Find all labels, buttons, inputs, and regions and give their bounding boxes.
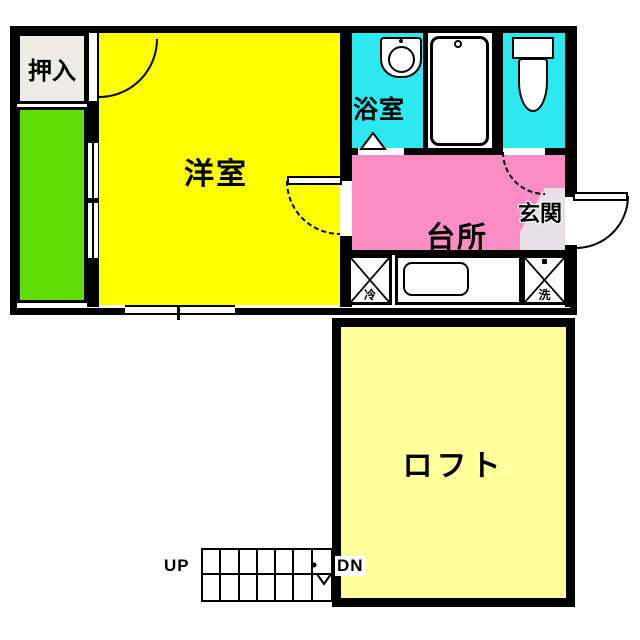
south-window-tick [177,305,180,320]
south-window [125,305,235,315]
closet-room: 押入 [17,33,87,104]
right-wall-upper [565,33,577,197]
refrigerator-label: 冷 [363,289,377,301]
veranda-window-1 [88,143,98,198]
bathtub-drain-icon [454,40,462,48]
bath-tub-wall [423,33,428,152]
closet-door-opening [87,33,99,101]
room-door-opening [340,181,352,236]
tub-toilet-wall [492,33,503,152]
toilet-door-opening [503,148,545,155]
entry-door-opening [566,197,578,245]
floor-plan-canvas: 押入 冷 洗 [0,0,640,640]
washbasin-bowl-icon [388,46,415,73]
loft-room: ロフト [332,318,575,607]
veranda-window-2 [88,203,98,258]
entry-door-leaf [573,192,628,201]
western-room-label: 洋室 [184,149,248,193]
washer-faucet-icon [542,259,547,264]
refrigerator-space-icon: 冷 [348,255,392,305]
entry-door-arc [576,196,628,248]
bathtub-icon [430,36,489,146]
bathroom-label: 浴室 [353,90,405,126]
kitchen-label: 台所 [426,214,488,256]
loft-label: ロフト [403,441,505,485]
entry-label: 玄関 [518,196,562,228]
kitchen-sink-icon [403,262,469,296]
stairs-down-label: DN [335,556,366,576]
room-door-leaf [287,176,342,185]
stairs [201,548,333,602]
washbasin-faucet-icon [399,39,403,43]
closet-label: 押入 [28,51,76,86]
toilet-tank-icon [512,37,554,59]
veranda-strip [17,107,87,303]
bath-door-opening [358,148,404,155]
stairs-up-label: UP [164,556,190,576]
washer-label: 洗 [537,289,551,301]
